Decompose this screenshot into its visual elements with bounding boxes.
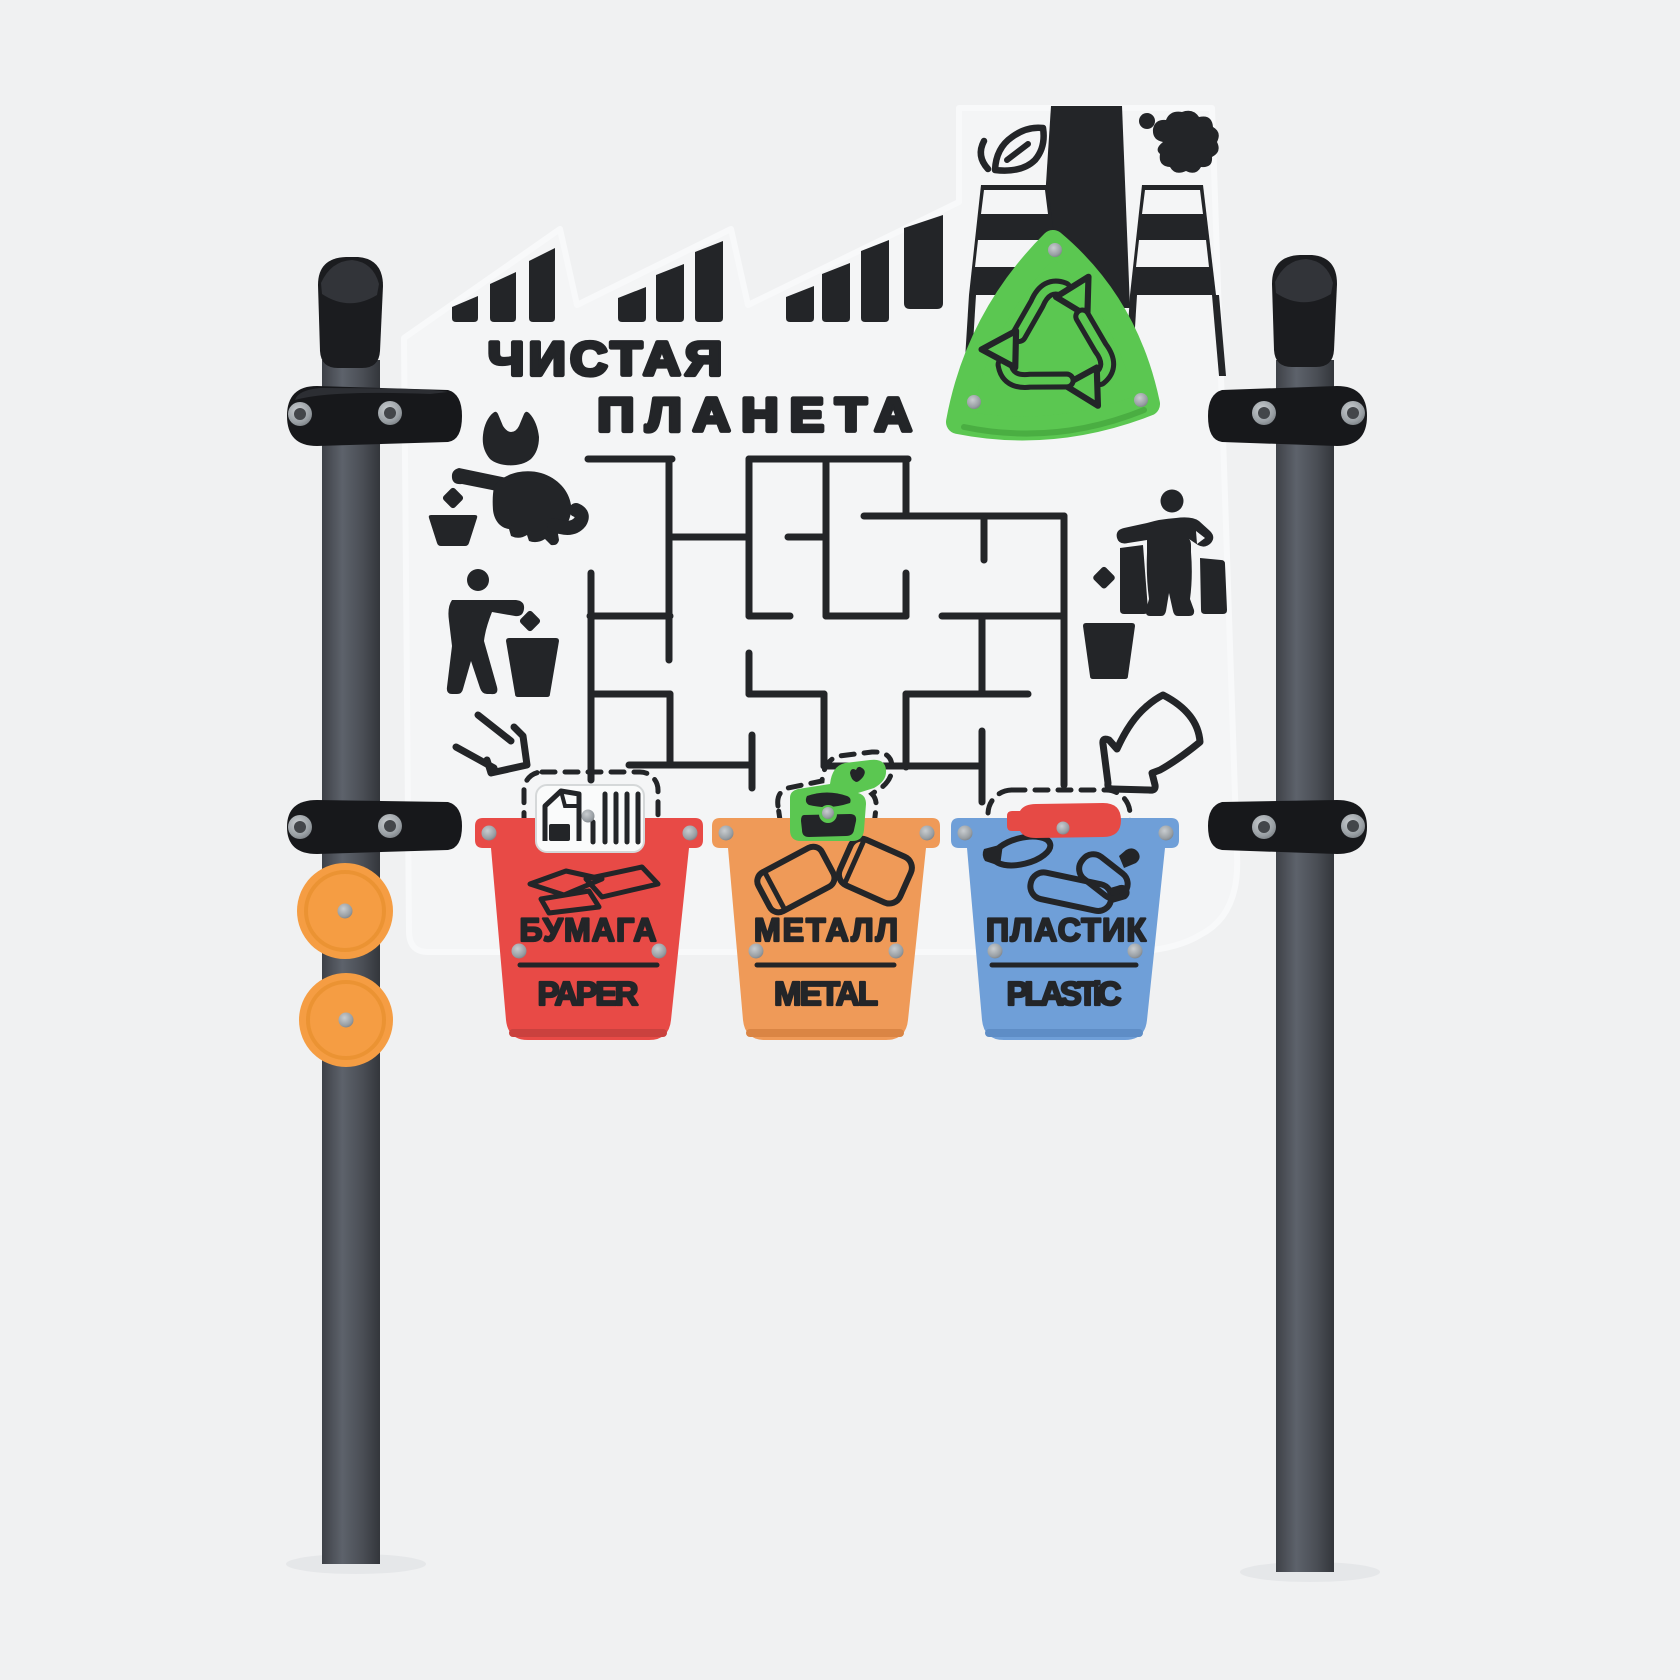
svg-text:МЕТАЛЛ: МЕТАЛЛ	[754, 912, 898, 948]
svg-text:METAL: METAL	[774, 975, 878, 1012]
svg-text:PLASTiC: PLASTiC	[1007, 975, 1122, 1012]
svg-text:PAPER: PAPER	[538, 975, 639, 1012]
svg-text:ПЛАСТИК: ПЛАСТИК	[986, 912, 1146, 948]
svg-text:ЧИСТАЯ: ЧИСТАЯ	[488, 333, 722, 385]
svg-text:БУМАГА: БУМАГА	[520, 912, 657, 948]
